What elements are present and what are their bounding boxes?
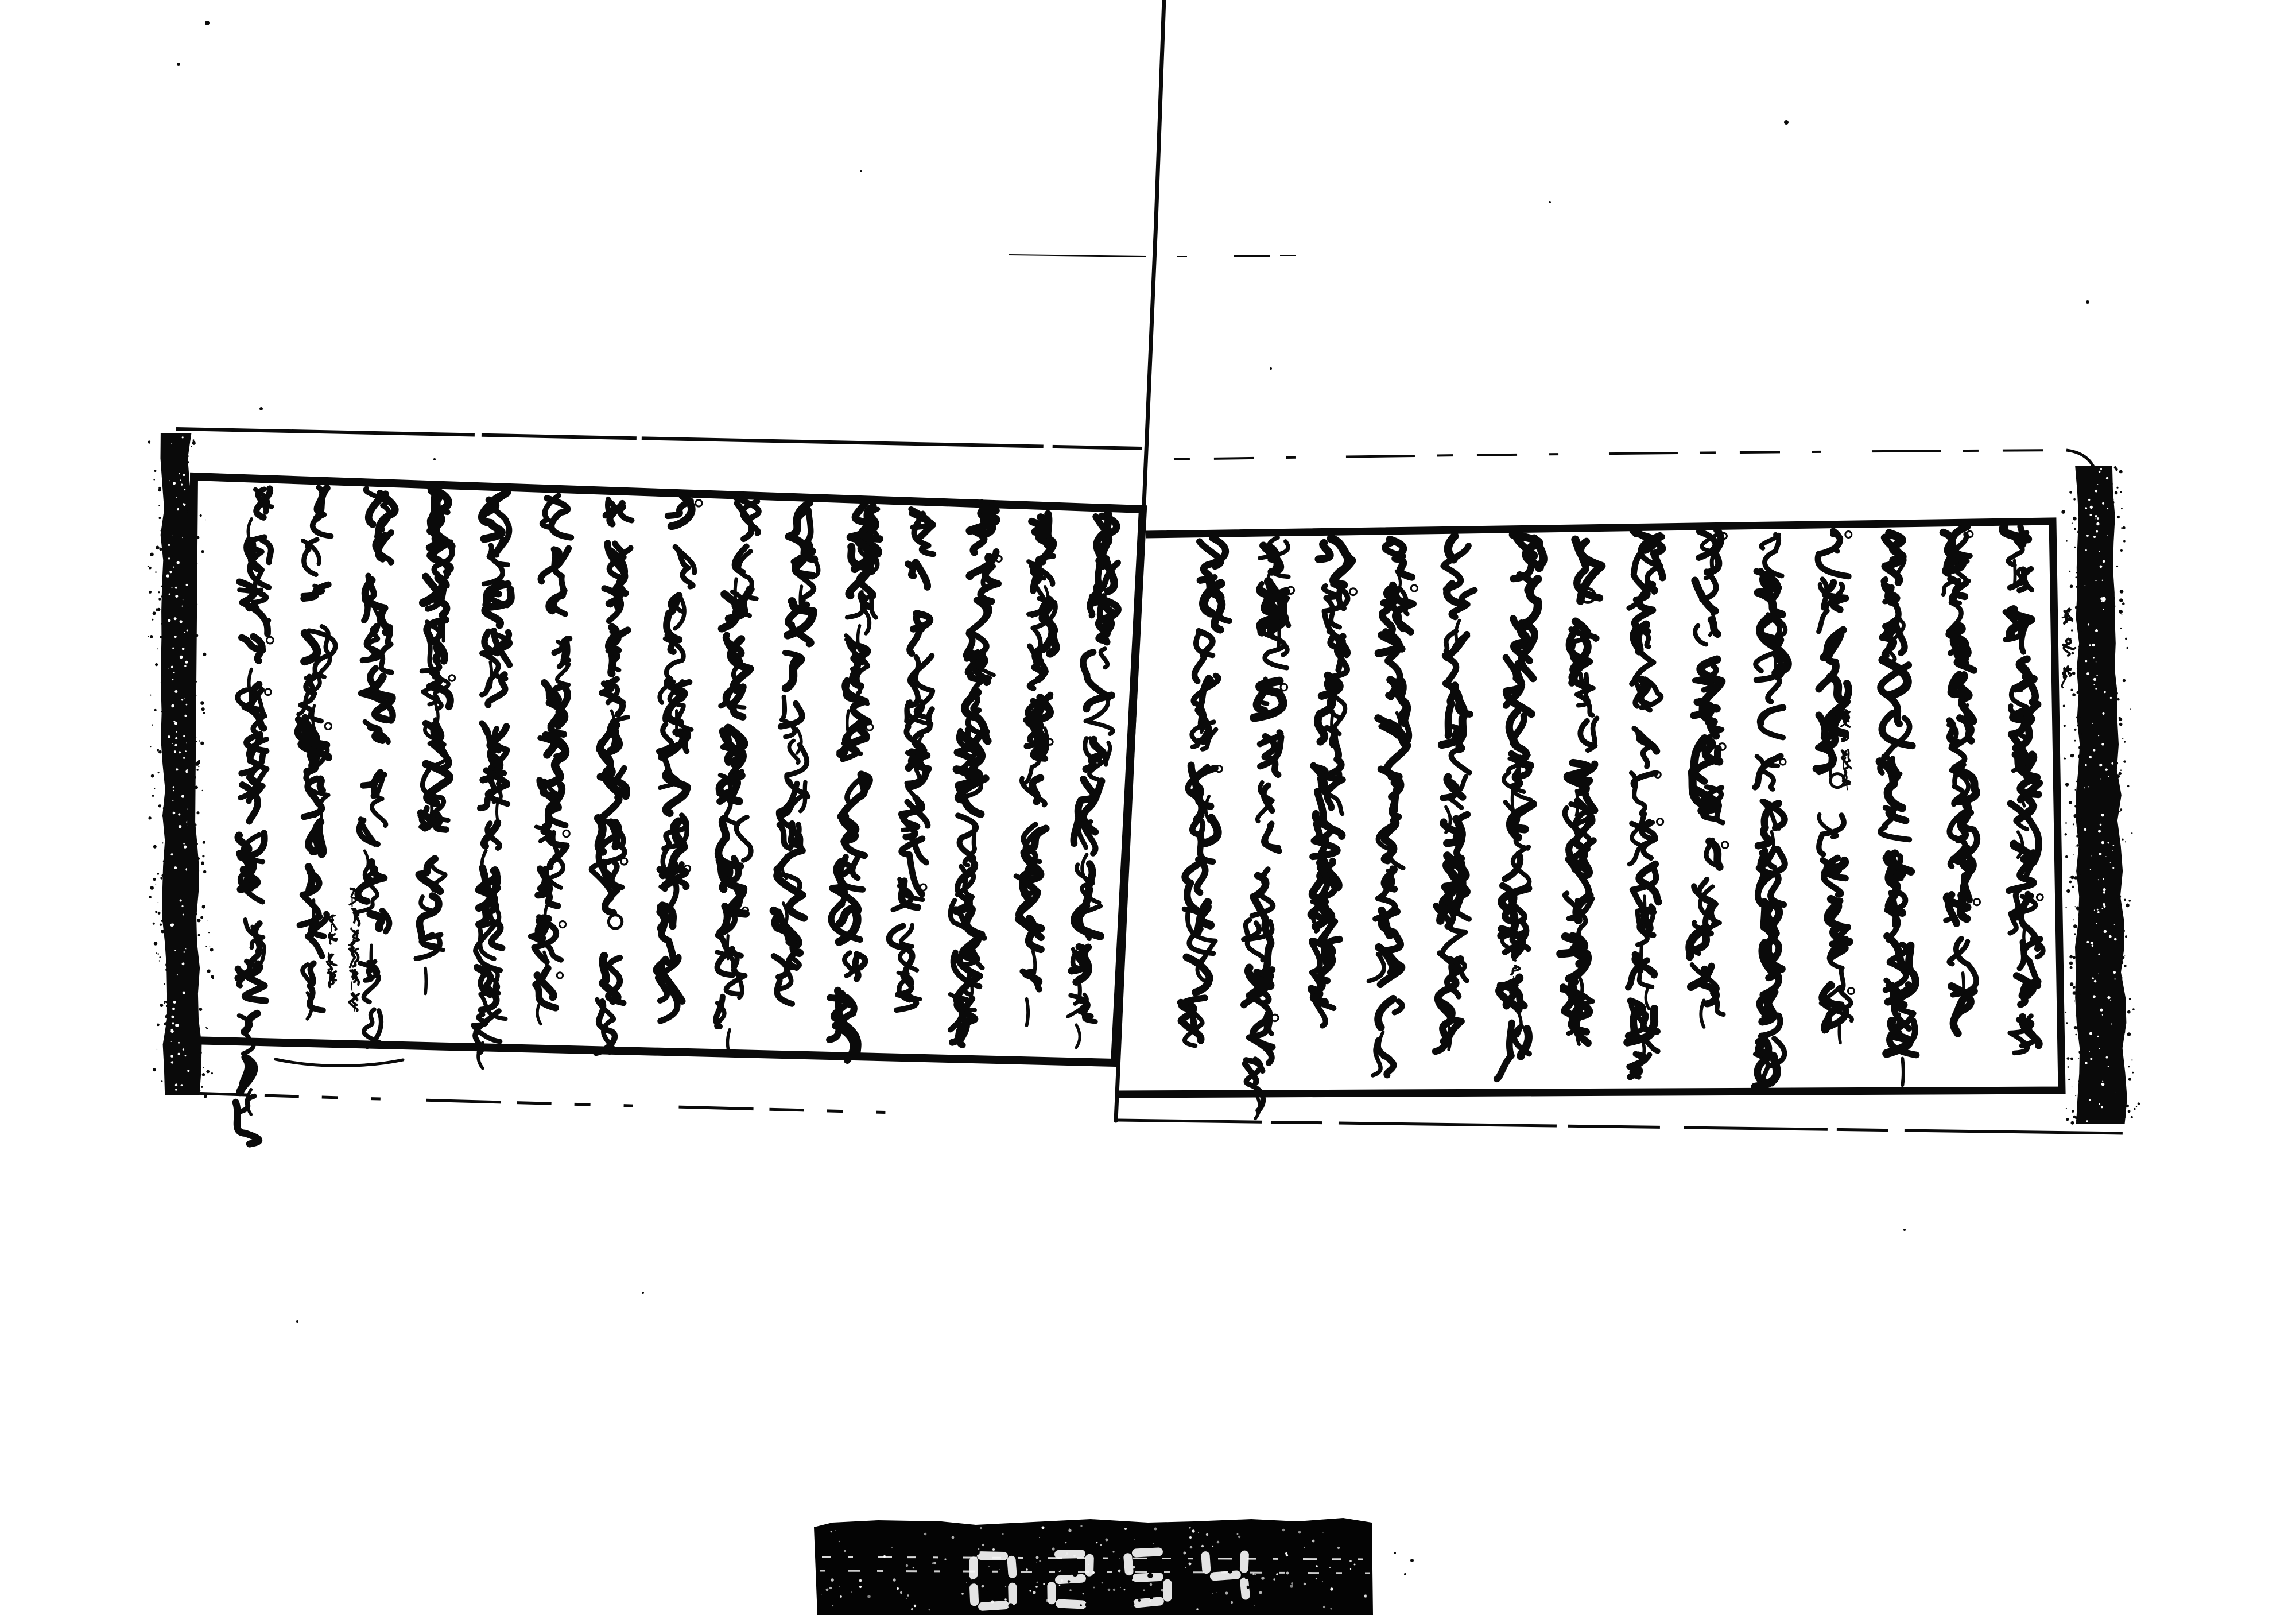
text-column xyxy=(1497,535,1543,1079)
text-column xyxy=(716,498,759,1055)
right-page xyxy=(1118,450,2140,1133)
left-page xyxy=(148,429,1143,1144)
text-column xyxy=(657,496,702,1021)
margin-label xyxy=(2062,609,2073,688)
text-column xyxy=(1369,539,1418,1075)
gutter-shadow-left xyxy=(148,433,214,1098)
scan-canvas xyxy=(0,0,2296,1615)
scanned-manuscript-spread: 0254 評判五 xyxy=(0,0,2296,1615)
text-column xyxy=(1943,526,1980,1033)
text-column xyxy=(1627,530,1663,1077)
text-column xyxy=(951,504,1002,1045)
left-page-bottom-edge xyxy=(174,1093,895,1113)
scan-artifact-line xyxy=(1009,255,1296,257)
right-page-top-edge xyxy=(1174,450,2073,459)
left-page-top-edge xyxy=(176,429,1142,448)
text-column xyxy=(1436,536,1475,1052)
text-column xyxy=(355,489,395,1047)
text-column xyxy=(1755,535,1788,1087)
text-column xyxy=(416,489,455,994)
text-columns-right xyxy=(1181,526,2043,1118)
text-column xyxy=(889,509,933,1010)
text-column xyxy=(531,495,571,1024)
text-column xyxy=(1244,537,1294,1118)
text-column xyxy=(1181,538,1229,1045)
text-column xyxy=(1068,512,1118,1048)
binding-shadow-right xyxy=(2061,466,2140,1125)
text-column xyxy=(1310,539,1356,1026)
frame-counter-bar xyxy=(814,1518,1373,1615)
fold-edge-line xyxy=(1116,0,1164,1121)
text-columns-left xyxy=(236,487,1118,1144)
text-column xyxy=(1689,530,1728,1027)
text-column xyxy=(473,493,511,1068)
interlinear-annotation xyxy=(349,889,359,1011)
right-page-bottom-edge xyxy=(1118,1120,2124,1133)
stray-mark xyxy=(276,1059,403,1066)
text-column xyxy=(2003,526,2043,1053)
text-column xyxy=(829,501,880,1060)
text-column xyxy=(1560,540,1601,1044)
text-column xyxy=(1816,531,1854,1043)
interlinear-annotation xyxy=(327,914,337,987)
text-column xyxy=(1016,514,1056,1025)
text-column xyxy=(591,499,631,1053)
dust-specks xyxy=(177,21,2089,1575)
interlinear-annotation xyxy=(1841,710,1851,789)
text-column xyxy=(774,503,819,1004)
text-column xyxy=(1880,533,1917,1086)
